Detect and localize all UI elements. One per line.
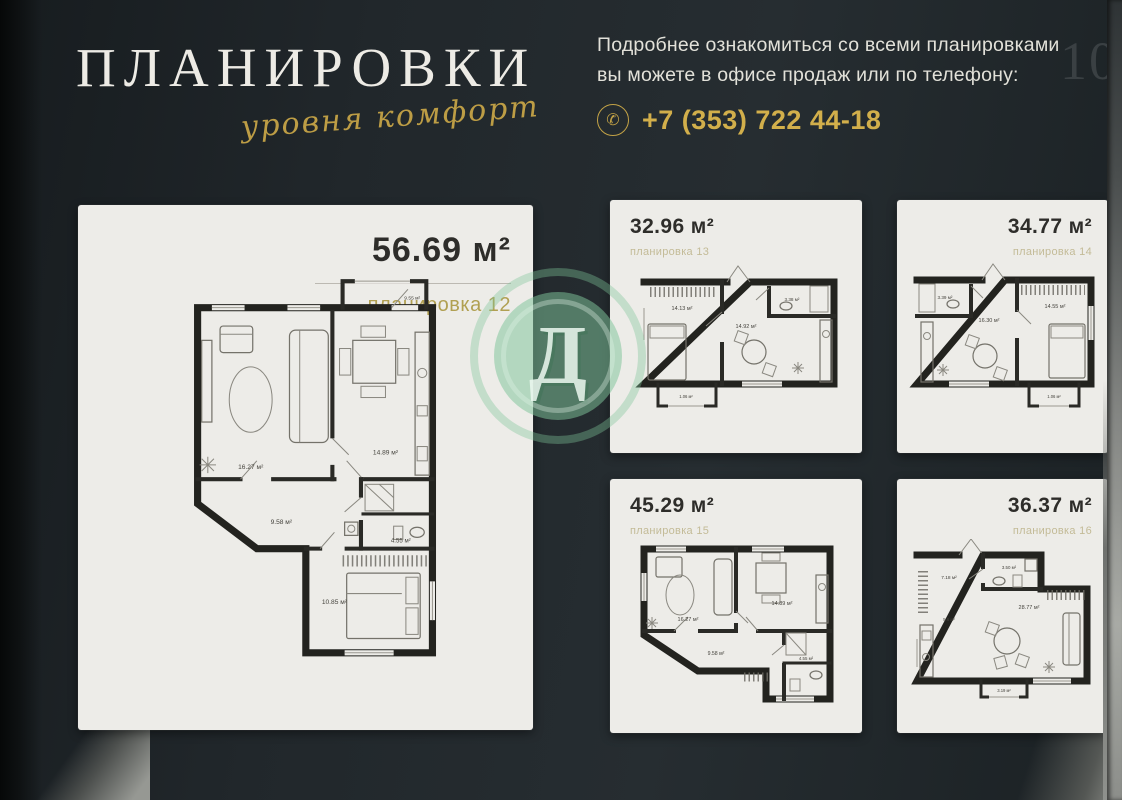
phone-icon: ✆: [597, 104, 629, 136]
card-16-header: 36.37 м² планировка 16: [1008, 494, 1092, 537]
room-label-bedroom: 14.13 м²: [672, 306, 693, 312]
room-label-living: 16.27 м²: [238, 464, 264, 471]
room-label-bedroom: 10.85 м²: [322, 599, 348, 606]
room-label-bath: 4.55 м²: [799, 656, 814, 661]
card-13-label: планировка 13: [630, 246, 714, 258]
room-label-living: 16.30 м²: [979, 318, 1000, 324]
floorplan-card-14: 34.77 м² планировка 14 3.39 м² 16.30 м² …: [897, 200, 1108, 453]
room-label-balcony: 1.06 м²: [679, 394, 693, 399]
room-label-bath: 3.50 м²: [1002, 565, 1017, 570]
plant-icon: [937, 364, 949, 376]
info-text: Подробнее ознакомиться со всеми планиров…: [597, 30, 1060, 90]
room-label-balcony: 3.19 м²: [997, 688, 1011, 693]
plant-icon: [200, 457, 216, 473]
info-line-1: Подробнее ознакомиться со всеми планиров…: [597, 30, 1060, 60]
card-13-header: 32.96 м² планировка 13: [630, 215, 714, 258]
room-label-kitchen: 5.6 м²: [943, 617, 955, 622]
room-label-hall: 9.58 м²: [708, 651, 725, 657]
room-label-bath: 3.39 м²: [938, 295, 953, 300]
card-15-area: 45.29 м²: [630, 494, 714, 518]
floorplan-card-12: 56.69 м² планировка 12: [78, 205, 533, 730]
floorplan-card-16: 36.37 м² планировка 16 7.18 м² 3.50 м² 5…: [897, 479, 1108, 733]
room-label-kitchen: 14.89 м²: [772, 601, 793, 607]
floor-plan-16: 7.18 м² 3.50 м² 5.6 м² 28.77 м² 3.19 м²: [909, 539, 1099, 707]
room-label-living: 16.27 м²: [678, 617, 699, 623]
plant-icon: [1043, 661, 1055, 673]
floorplan-card-15: 45.29 м² планировка 15 16.27 м² 14.89 м²…: [610, 479, 862, 733]
info-line-2: вы можете в офисе продаж или по телефону…: [597, 60, 1060, 90]
watermark-letter: Д: [529, 314, 587, 398]
room-label-bedroom: 14.55 м²: [1045, 304, 1066, 310]
floor-plan-15: 16.27 м² 14.89 м² 9.58 м² 4.55 м²: [634, 539, 844, 709]
card-16-area: 36.37 м²: [1008, 494, 1092, 518]
card-15-header: 45.29 м² планировка 15: [630, 494, 714, 537]
card-15-label: планировка 15: [630, 525, 714, 537]
card-14-area: 34.77 м²: [1008, 215, 1092, 239]
watermark-logo: Д: [494, 292, 622, 420]
plant-icon: [792, 362, 804, 374]
card-14-label: планировка 14: [1008, 246, 1092, 258]
page-corner-bottom-right: [952, 730, 1122, 800]
page-edge: [1107, 0, 1122, 800]
card-16-label: планировка 16: [1008, 525, 1092, 537]
floor-plan-12: 16.27 м² 14.89 м² 9.58 м² 4.55 м² 10.85 …: [190, 275, 438, 663]
room-label-kitchen: 14.89 м²: [373, 450, 399, 457]
floorplan-card-13: 32.96 м² планировка 13 14.13 м² 14.92 м²…: [610, 200, 862, 453]
phone-block: ✆ +7 (353) 722 44-18: [597, 104, 881, 136]
card-14-header: 34.77 м² планировка 14: [1008, 215, 1092, 258]
room-label-balcony: 9.55 м²: [404, 296, 420, 302]
page-spine-shadow: [0, 0, 42, 800]
room-label-living: 28.77 м²: [1019, 605, 1040, 611]
page-title: ПЛАНИРОВКИ: [76, 36, 536, 99]
room-label-hall: 7.18 м²: [941, 575, 957, 581]
floor-plan-14: 3.39 м² 16.30 м² 14.55 м² 1.06 м²: [909, 262, 1099, 420]
floor-plan-13: 14.13 м² 14.92 м² 3.38 м² 1.06 м²: [634, 264, 844, 422]
phone-number: +7 (353) 722 44-18: [642, 105, 881, 136]
card-13-area: 32.96 м²: [630, 215, 714, 239]
room-label-hall: 9.58 м²: [271, 519, 293, 526]
plant-icon: [646, 617, 658, 629]
card-12-area: 56.69 м²: [315, 231, 511, 270]
room-label-balcony: 1.06 м²: [1047, 394, 1061, 399]
room-label-bath: 3.38 м²: [785, 297, 800, 302]
room-label-living: 14.92 м²: [736, 324, 757, 330]
room-label-bath: 4.55 м²: [391, 538, 411, 545]
